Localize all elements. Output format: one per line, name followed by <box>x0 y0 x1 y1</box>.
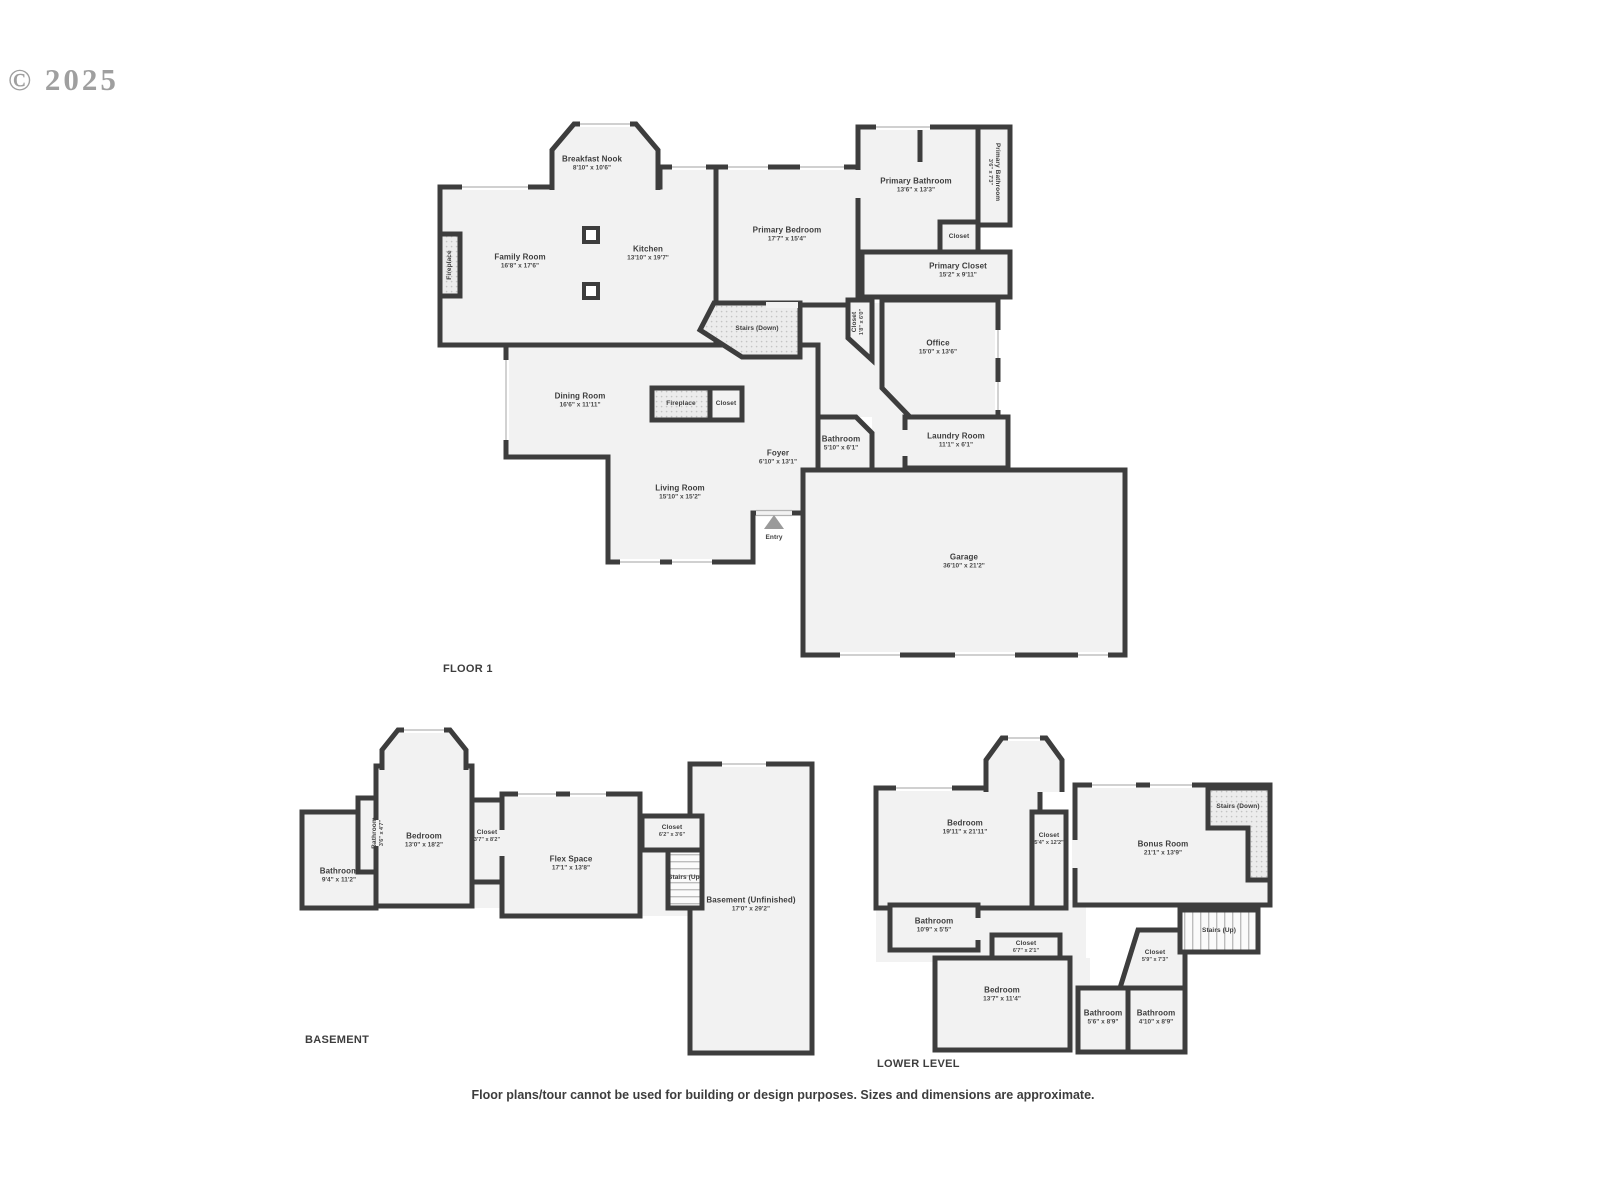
room-label-lower-stairs-down: Stairs (Down) <box>1216 803 1259 811</box>
room-label-primary-bath-closet: Closet <box>949 233 969 241</box>
room-label-lower-stairs-up: Stairs (Up) <box>1202 927 1236 935</box>
floor1-hall-floor2 <box>872 417 905 468</box>
entry-arrow-icon <box>764 515 784 529</box>
room-label-lower-bedroom1: Bedroom19'11" x 21'11" <box>943 819 988 838</box>
room-label-family-fireplace: Fireplace <box>446 250 454 279</box>
room-label-lower-bathroom1: Bathroom10'9" x 5'5" <box>915 917 954 936</box>
family-kitchen-walls <box>440 167 716 345</box>
floorplan-page: Breakfast Nook8'10" x 10'6" Family Room1… <box>0 0 1600 1200</box>
lower-bedroom1-walls <box>876 788 1040 908</box>
room-label-basement-bathroom: Bathroom9'4" x 11'2" <box>320 867 359 886</box>
lower-level-title: LOWER LEVEL <box>877 1058 960 1070</box>
room-label-basement-closet2: Closet6'2" x 3'6" <box>659 824 685 840</box>
room-label-lower-bedroom2: Bedroom13'7" x 11'4" <box>983 986 1021 1005</box>
lower-bedroom1-bay <box>986 738 1062 792</box>
room-label-lower-closet3: Closet5'9" x 7'3" <box>1142 949 1168 965</box>
room-label-entry: Entry <box>765 534 782 542</box>
room-label-stairs-down-f1: Stairs (Down) <box>735 325 778 333</box>
office-walls <box>882 300 998 417</box>
room-label-lower-bathroom3: Bathroom4'10" x 8'9" <box>1137 1009 1176 1028</box>
lower-closet1-walls <box>1032 812 1066 908</box>
room-label-basement-unfinished: Basement (Unfinished)17'0" x 29'2" <box>706 896 795 915</box>
room-label-basement-bathroom-small: Bathroom3'6" x 4'7" <box>371 817 387 849</box>
room-label-basement-closet1: Closet3'7" x 8'2" <box>474 829 500 845</box>
room-label-breakfast-nook: Breakfast Nook8'10" x 10'6" <box>562 155 622 174</box>
room-label-family-room: Family Room16'8" x 17'6" <box>494 253 545 272</box>
basement-plan <box>302 730 812 1053</box>
room-label-center-fireplace: Fireplace <box>666 400 695 408</box>
room-label-bathroom-f1: Bathroom5'10" x 6'1" <box>822 435 861 454</box>
room-label-dining-room: Dining Room16'6" x 11'11" <box>555 392 606 411</box>
disclaimer-text: Floor plans/tour cannot be used for buil… <box>471 1088 1094 1102</box>
room-label-flex-space: Flex Space17'1" x 13'8" <box>550 855 593 874</box>
room-label-primary-bathroom-small: Primary Bathroom3'6" x 7'3" <box>985 143 1001 201</box>
room-label-basement-bedroom: Bedroom13'0" x 18'2" <box>405 832 443 851</box>
basement-bedroom-bay <box>382 730 466 770</box>
kitchen-island-1 <box>584 228 598 242</box>
room-label-primary-bathroom: Primary Bathroom13'6" x 13'3" <box>880 177 951 196</box>
room-label-office: Office15'0" x 13'6" <box>919 339 957 358</box>
floorplan-drawing <box>0 0 1600 1200</box>
floor1-title: FLOOR 1 <box>443 663 493 675</box>
room-label-lower-closet1: Closet5'4" x 12'2" <box>1034 832 1063 848</box>
copyright-watermark: © 2025 <box>8 62 119 98</box>
room-label-lower-closet2: Closet6'7" x 2'1" <box>1013 940 1039 956</box>
room-label-lower-bathroom2: Bathroom5'6" x 8'9" <box>1084 1009 1123 1028</box>
room-label-hall-closet: Closet1'8" x 6'0" <box>851 309 867 335</box>
basement-title: BASEMENT <box>305 1034 369 1046</box>
room-label-foyer: Foyer6'10" x 13'1" <box>759 449 797 468</box>
floor1-plan <box>440 124 1125 655</box>
room-label-bonus-room: Bonus Room21'1" x 13'9" <box>1138 840 1189 859</box>
kitchen-island-2 <box>584 284 598 298</box>
room-label-kitchen: Kitchen13'10" x 19'7" <box>627 245 669 264</box>
room-label-garage: Garage36'10" x 21'2" <box>943 553 985 572</box>
room-label-primary-bedroom: Primary Bedroom17'7" x 15'4" <box>753 226 822 245</box>
room-label-basement-stairs-up: Stairs (Up) <box>668 874 702 882</box>
room-label-center-closet: Closet <box>716 400 736 408</box>
room-label-primary-closet: Primary Closet15'2" x 9'11" <box>929 262 987 281</box>
room-label-laundry-room: Laundry Room11'1" x 6'1" <box>927 432 985 451</box>
room-label-living-room: Living Room15'10" x 15'2" <box>655 484 705 503</box>
